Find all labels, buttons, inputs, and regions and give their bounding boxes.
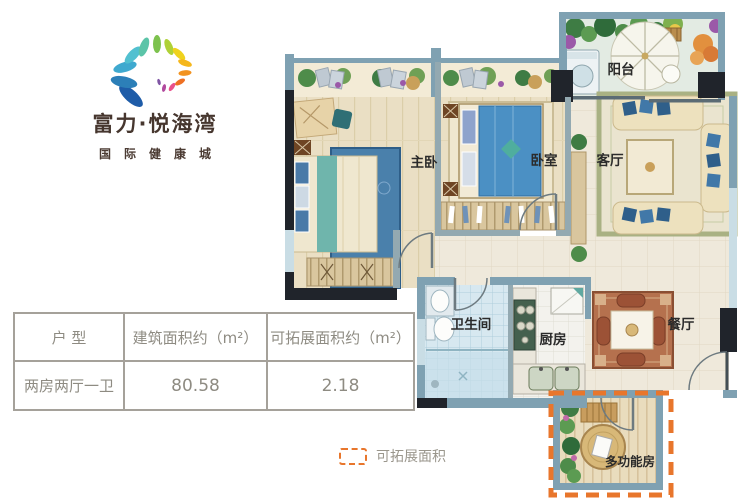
brand-subtitle: 国际健康城 bbox=[68, 145, 255, 162]
header-unit-type: 户 型 bbox=[14, 313, 124, 361]
room-label-master-bedroom: 主卧 bbox=[411, 154, 438, 171]
room-label-multi-function-room: 多功能房 bbox=[605, 454, 655, 469]
room-label-bedroom: 卧室 bbox=[531, 152, 559, 169]
brand-name: 富力·悦海湾 bbox=[68, 108, 242, 138]
room-label-dining-room: 餐厅 bbox=[667, 316, 696, 333]
room-label-kitchen: 厨房 bbox=[540, 331, 567, 348]
cell-built-area: 80.58 bbox=[124, 361, 267, 410]
dining-room-furniture bbox=[593, 292, 673, 368]
cell-unit-type: 两房两厅一卫 bbox=[14, 361, 124, 410]
floorplan: 主卧 卧室 客厅 阳台 卫生间 厨房 餐厅 多功能房 bbox=[283, 6, 747, 498]
brand-spiral-logo-icon bbox=[68, 24, 242, 112]
room-label-living-room: 客厅 bbox=[596, 152, 625, 169]
brand-logo: 富力·悦海湾 国际健康城 bbox=[68, 24, 242, 162]
umbrella-icon bbox=[611, 22, 680, 90]
room-label-balcony: 阳台 bbox=[608, 61, 635, 78]
page: 富力·悦海湾 国际健康城 户 型 建筑面积约（m²） 可拓展面积约（m²） 两房… bbox=[0, 0, 750, 500]
room-label-bathroom: 卫生间 bbox=[451, 316, 492, 333]
header-built-area: 建筑面积约（m²） bbox=[124, 313, 267, 361]
